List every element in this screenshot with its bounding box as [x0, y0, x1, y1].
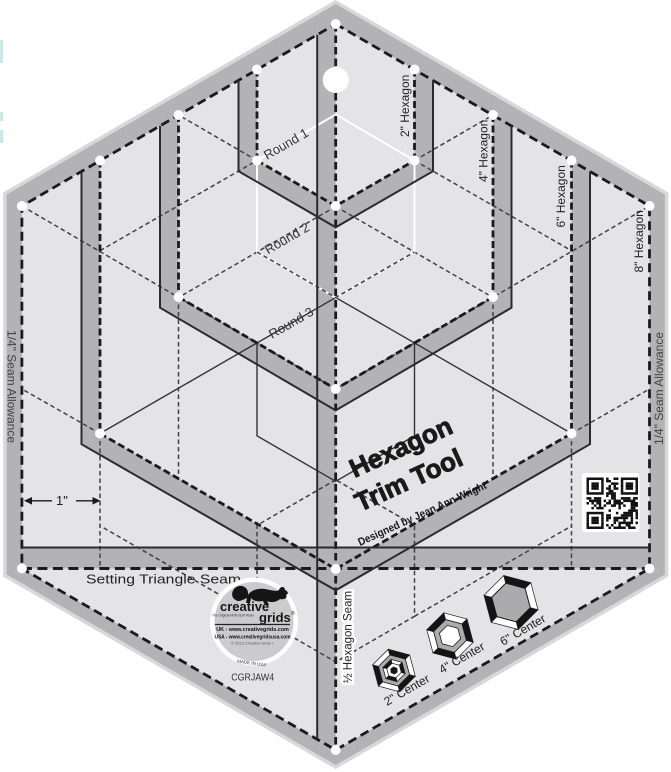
svg-text:1/4" Seam Allowance: 1/4" Seam Allowance [652, 332, 666, 445]
svg-text:The Original NON-SLIP Ruler: The Original NON-SLIP Ruler [212, 614, 255, 618]
svg-text:®: ® [291, 610, 295, 617]
svg-text:Setting Triangle Seam: Setting Triangle Seam [86, 572, 241, 587]
svg-text:© 2013 Creative Grids +: © 2013 Creative Grids + [231, 641, 275, 646]
svg-text:2" Hexagon: 2" Hexagon [398, 75, 412, 137]
svg-text:6" Hexagon: 6" Hexagon [554, 165, 568, 227]
svg-text:CGRJAW4: CGRJAW4 [231, 672, 274, 684]
svg-text:½ Hexagon Seam: ½ Hexagon Seam [343, 591, 355, 683]
svg-text:8" Hexagon: 8" Hexagon [632, 210, 646, 272]
svg-text:grids: grids [259, 610, 291, 625]
svg-text:4" Hexagon: 4" Hexagon [477, 120, 491, 182]
svg-text:UK - www.creativegrids.com: UK - www.creativegrids.com [216, 627, 289, 633]
svg-text:1": 1" [56, 493, 68, 508]
svg-text:1/4" Seam Allowance: 1/4" Seam Allowance [5, 330, 19, 443]
